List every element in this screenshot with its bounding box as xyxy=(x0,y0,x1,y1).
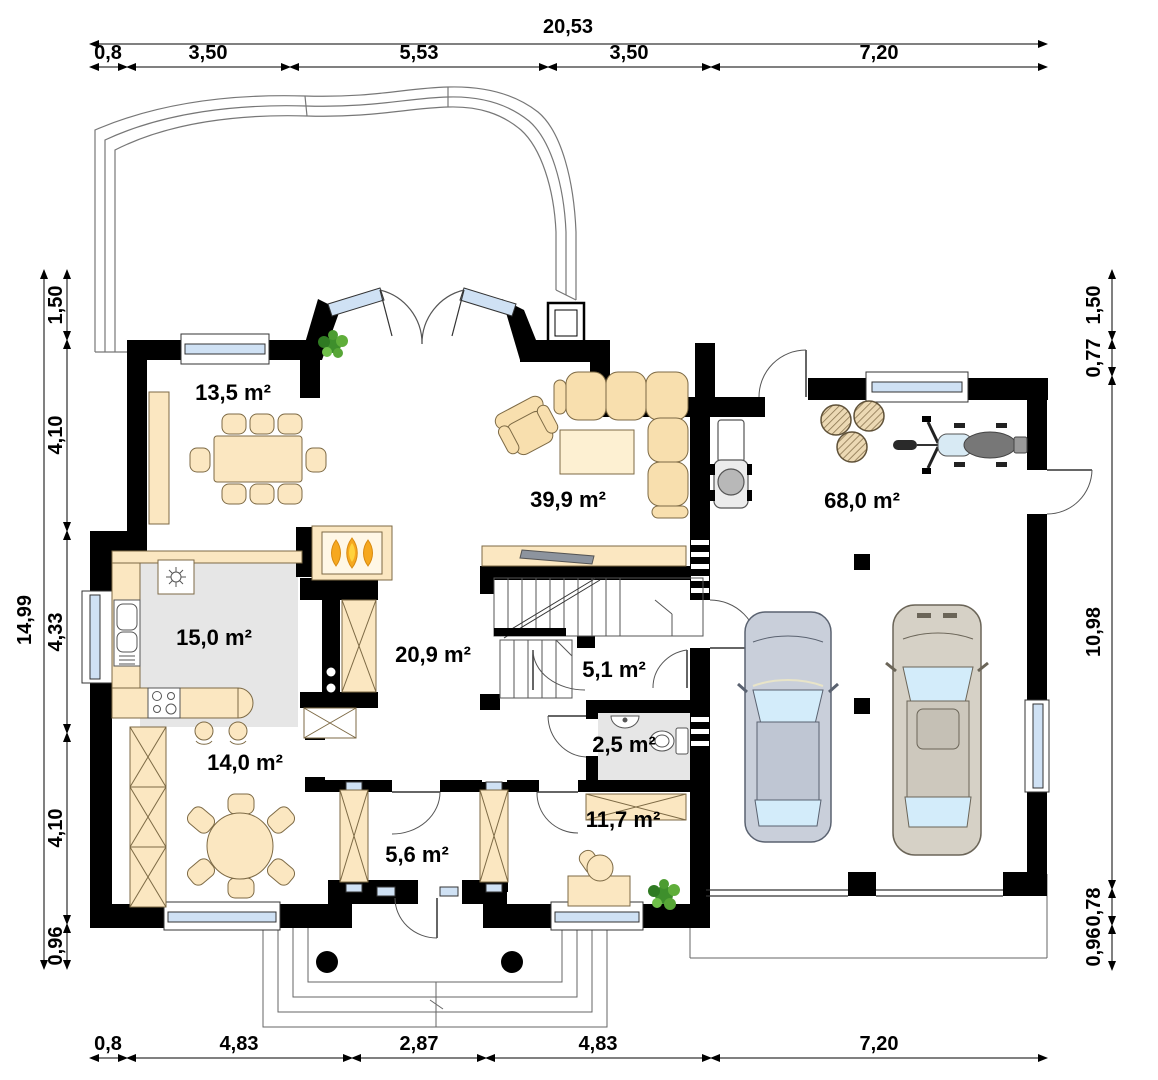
dim-bottom-1: 0,8 xyxy=(63,1033,153,1056)
room-label-office: 11,7 m² xyxy=(558,807,688,833)
dining-table xyxy=(214,436,302,482)
dim-bottom-2: 4,83 xyxy=(194,1033,284,1056)
dim-top-total: 20,53 xyxy=(523,16,613,39)
round-table xyxy=(207,813,273,879)
tavern-wardrobe xyxy=(130,727,166,907)
window-bay-left xyxy=(328,288,384,316)
sink xyxy=(114,600,140,666)
room-label-wc: 2,5 m² xyxy=(559,732,689,758)
sidelight xyxy=(486,884,502,892)
barrel xyxy=(821,405,851,435)
sidelight xyxy=(346,782,362,790)
floor-plan-page: 13,5 m² 39,9 m² 68,0 m² 15,0 m² 20,9 m² … xyxy=(0,0,1158,1080)
terrace-chimney xyxy=(548,303,584,343)
dim-left-5: 0,96 xyxy=(45,906,67,986)
door-corridor xyxy=(392,792,440,834)
dining-table-set xyxy=(190,414,326,504)
porch-column xyxy=(316,951,338,973)
sidelight xyxy=(377,887,395,896)
room-label-vestibule: 5,1 m² xyxy=(549,657,679,683)
garage-pillar xyxy=(854,554,870,570)
armchair xyxy=(491,393,563,462)
fireplace xyxy=(312,526,392,580)
car xyxy=(886,605,988,855)
sidelight xyxy=(486,782,502,790)
corridor-posts xyxy=(340,790,508,882)
dim-bottom-3: 2,87 xyxy=(374,1033,464,1056)
dim-left-total: 14,99 xyxy=(14,580,36,660)
shaft-vent xyxy=(327,668,336,677)
stove xyxy=(148,688,180,718)
window-garage-right xyxy=(1025,700,1049,792)
floor-plan-drawing xyxy=(0,0,1158,1080)
garage-pillar xyxy=(854,698,870,714)
flame-icon xyxy=(332,538,373,568)
radiator xyxy=(691,710,709,758)
door-garage-side xyxy=(1047,470,1092,514)
dim-top-3: 5,53 xyxy=(374,42,464,65)
dim-top-2: 3,50 xyxy=(163,42,253,65)
room-label-hall: 20,9 m² xyxy=(368,642,498,668)
porch-column xyxy=(501,951,523,973)
window-garage-top xyxy=(866,372,968,402)
window-dining xyxy=(181,334,269,364)
window-kitchen xyxy=(82,591,112,683)
dim-left-4: 4,10 xyxy=(45,788,67,868)
door-garage-front xyxy=(759,350,806,397)
room-label-corridor: 5,6 m² xyxy=(352,842,482,868)
dim-left-3: 4,33 xyxy=(45,592,67,672)
dim-top-5: 7,20 xyxy=(834,42,924,65)
barrel xyxy=(854,401,884,431)
dim-right-5: 0,96 xyxy=(1083,907,1105,987)
dim-left-1: 1,50 xyxy=(45,265,67,345)
lawnmower xyxy=(710,420,752,508)
room-label-living: 39,9 m² xyxy=(503,487,633,513)
stool xyxy=(229,722,247,740)
bay-french-doors xyxy=(380,290,464,344)
room-label-dining: 13,5 m² xyxy=(168,380,298,406)
dim-bottom-5: 7,20 xyxy=(834,1033,924,1056)
round-table-set xyxy=(185,794,298,898)
stool xyxy=(195,722,213,740)
dim-left-2: 4,10 xyxy=(45,395,67,475)
dim-right-3: 10,98 xyxy=(1083,592,1105,672)
coffee-table xyxy=(560,430,634,474)
dining-cabinet xyxy=(149,392,169,524)
car xyxy=(738,612,838,842)
shaft-vent xyxy=(327,684,336,693)
garage-items xyxy=(706,401,1027,896)
dim-top-1: 0,8 xyxy=(63,42,153,65)
dim-bottom-4: 4,83 xyxy=(553,1033,643,1056)
sidelight xyxy=(346,884,362,892)
room-label-tavern: 14,0 m² xyxy=(180,750,310,776)
barrel xyxy=(837,432,867,462)
radiator xyxy=(691,532,709,596)
motorcycle xyxy=(893,416,1027,474)
room-label-garage: 68,0 m² xyxy=(797,488,927,514)
window-tavern xyxy=(164,902,280,930)
dim-top-4: 3,50 xyxy=(584,42,674,65)
dim-right-2: 0,77 xyxy=(1083,318,1105,398)
room-label-kitchen: 15,0 m² xyxy=(149,625,279,651)
window-bay-right xyxy=(460,288,516,316)
sidelight xyxy=(440,887,458,896)
tv-sideboard xyxy=(482,546,686,566)
